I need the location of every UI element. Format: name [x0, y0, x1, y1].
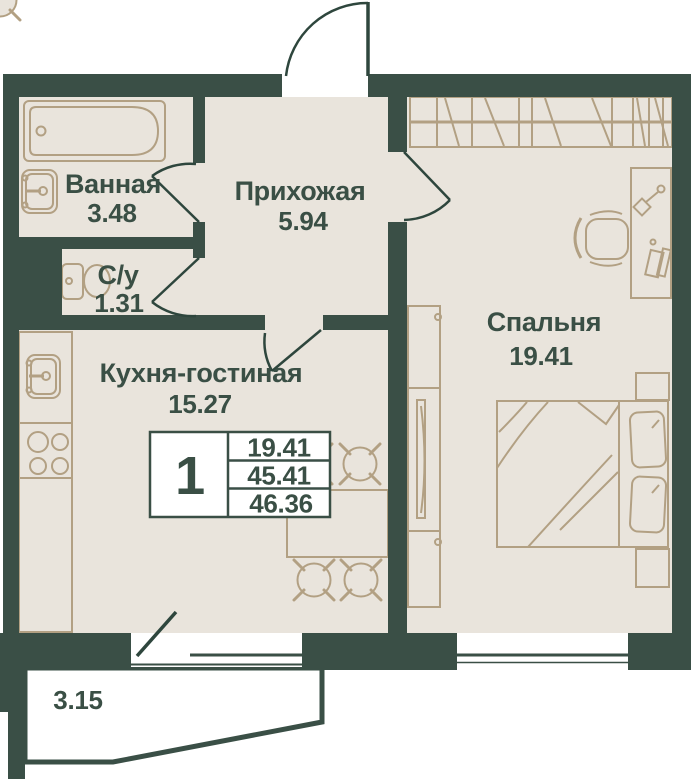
balcony-outline [25, 668, 322, 762]
nightstand [636, 373, 669, 400]
cabinet-top [408, 306, 441, 388]
bathroom-area: 3.48 [87, 198, 136, 228]
wc-label: С/у [97, 260, 138, 290]
chair [294, 560, 334, 600]
desk [631, 168, 671, 298]
chair [340, 444, 380, 484]
entrance-door [286, 2, 368, 76]
kitchen-living-area: 15.27 [168, 389, 232, 419]
wc-area: 1.31 [94, 288, 143, 318]
balcony-area: 3.15 [53, 685, 102, 715]
bathroom-label: Ванная [65, 169, 161, 199]
pillow [630, 411, 667, 468]
floor-plan-svg: 1 19.41 45.41 46.36 Ванная 3.48 С/у 1.31… [0, 0, 691, 779]
unit-area-row: 45.41 [247, 461, 311, 491]
unit-area-row: 46.36 [249, 489, 313, 519]
nightstand [636, 549, 669, 587]
bedroom-label: Спальня [487, 307, 602, 337]
floor-plan: 1 19.41 45.41 46.36 Ванная 3.48 С/у 1.31… [0, 0, 691, 779]
cabinet-bottom [408, 531, 441, 607]
hallway-area: 5.94 [278, 206, 328, 236]
hallway-label: Прихожая [235, 176, 366, 206]
bedroom-area: 19.41 [509, 341, 573, 371]
unit-area-row: 19.41 [247, 433, 311, 463]
pillow [630, 476, 667, 533]
chair [341, 560, 381, 600]
bedroom-window [457, 636, 628, 667]
rooms-count: 1 [175, 446, 205, 506]
kitchen-living-label: Кухня-гостиная [100, 358, 303, 388]
balcony [25, 668, 322, 762]
tall-wardrobe [408, 388, 440, 531]
unit-info-box: 1 19.41 45.41 46.36 [150, 432, 330, 519]
